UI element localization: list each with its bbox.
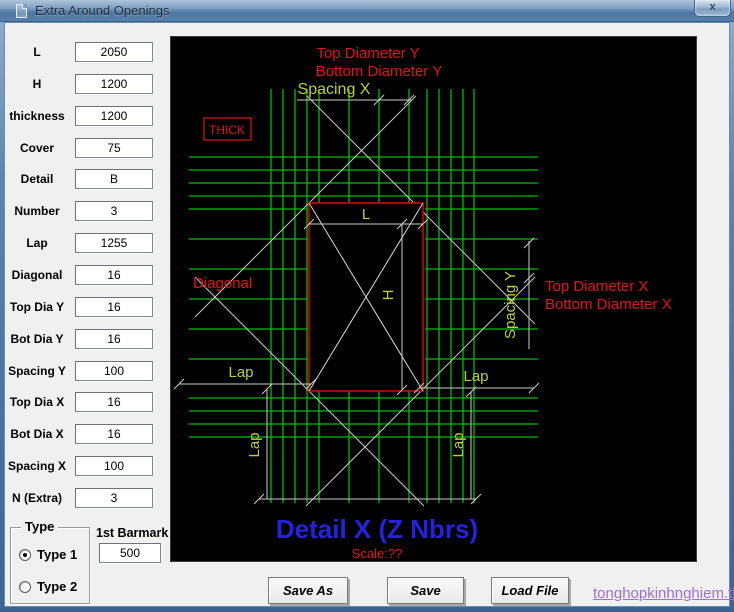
window-icon	[16, 4, 27, 18]
rebar-detail-drawing: THICK Top Diameter Y Bottom Diameter Y D…	[171, 37, 698, 563]
scale-label: Scale:??	[352, 546, 403, 561]
lap-bottom-left-annotation: Lap	[246, 432, 263, 457]
top-dia-x-field[interactable]	[75, 392, 153, 412]
thickness-field[interactable]	[75, 106, 153, 126]
thickness-label: thickness	[0, 106, 74, 126]
top-diameter-y-label: Top Diameter Y	[316, 45, 419, 62]
drawing-canvas: THICK Top Diameter Y Bottom Diameter Y D…	[170, 36, 697, 562]
radio-type-2-label: Type 2	[37, 579, 77, 594]
l-annotation: L	[362, 206, 370, 223]
load-file-button[interactable]: Load File	[491, 577, 569, 604]
h-field[interactable]	[75, 74, 153, 94]
lap-field[interactable]	[75, 233, 153, 253]
detail-field[interactable]	[75, 169, 153, 189]
cover-label: Cover	[0, 138, 74, 158]
cover-field[interactable]	[75, 138, 153, 158]
radio-type-2-circle[interactable]	[19, 581, 31, 593]
save-button[interactable]: Save	[387, 577, 464, 604]
diagonal-label: Diagonal	[0, 265, 74, 285]
bottom-diameter-y-label: Bottom Diameter Y	[316, 63, 442, 80]
top-dia-y-label: Top Dia Y	[0, 297, 74, 317]
bot-dia-y-field[interactable]	[75, 329, 153, 349]
bot-dia-y-label: Bot Dia Y	[0, 329, 74, 349]
detail-label: Detail	[0, 169, 74, 189]
app-window: Extra Around Openings x L H thickness Co…	[0, 0, 734, 612]
h-label: H	[0, 74, 74, 94]
l-field[interactable]	[75, 42, 153, 62]
radio-type-1-circle[interactable]	[19, 549, 31, 561]
barmark-label: 1st Barmark	[96, 526, 168, 540]
bot-dia-x-field[interactable]	[75, 424, 153, 444]
save-as-button[interactable]: Save As	[268, 577, 348, 604]
spacing-y-annotation: Spacing Y	[502, 271, 519, 339]
spacing-y-field[interactable]	[75, 361, 153, 381]
close-button[interactable]: x	[694, 0, 731, 17]
spacing-x-annotation: Spacing X	[298, 81, 371, 98]
radio-type-1-label: Type 1	[37, 547, 77, 562]
n-extra-field[interactable]	[75, 488, 153, 508]
spacing-y-label: Spacing Y	[0, 361, 74, 381]
number-field[interactable]	[75, 201, 153, 221]
spacing-x-label: Spacing X	[0, 456, 74, 476]
thick-label: THICK	[209, 123, 245, 137]
lap-right-annotation: Lap	[463, 368, 488, 385]
radio-type-1[interactable]: Type 1	[19, 546, 77, 560]
diagonal-field[interactable]	[75, 265, 153, 285]
lap-left-annotation: Lap	[228, 364, 253, 381]
bottom-diameter-x-label: Bottom Diameter X	[545, 296, 672, 313]
top-dia-y-field[interactable]	[75, 297, 153, 317]
window-title: Extra Around Openings	[35, 3, 169, 18]
radio-type-2[interactable]: Type 2	[19, 578, 77, 592]
lap-bottom-right-annotation: Lap	[450, 432, 467, 457]
titlebar[interactable]: Extra Around Openings	[0, 0, 734, 22]
spacing-x-field[interactable]	[75, 456, 153, 476]
l-label: L	[0, 42, 74, 62]
n-extra-label: N (Extra)	[0, 488, 74, 508]
top-dia-x-label: Top Dia X	[0, 392, 74, 412]
type-groupbox: Type Type 1 Type 2	[10, 527, 90, 604]
type-group-caption: Type	[21, 519, 58, 534]
lap-label: Lap	[0, 233, 74, 253]
bot-dia-x-label: Bot Dia X	[0, 424, 74, 444]
h-annotation: H	[380, 290, 397, 301]
detail-title: Detail X (Z Nbrs)	[276, 514, 478, 544]
barmark-field[interactable]	[99, 543, 161, 563]
watermark-link[interactable]: tonghopkinhnghiem.tk	[593, 585, 734, 602]
number-label: Number	[0, 201, 74, 221]
diagonal-annotation: Diagonal	[193, 275, 252, 292]
top-diameter-x-label: Top Diameter X	[545, 278, 648, 295]
